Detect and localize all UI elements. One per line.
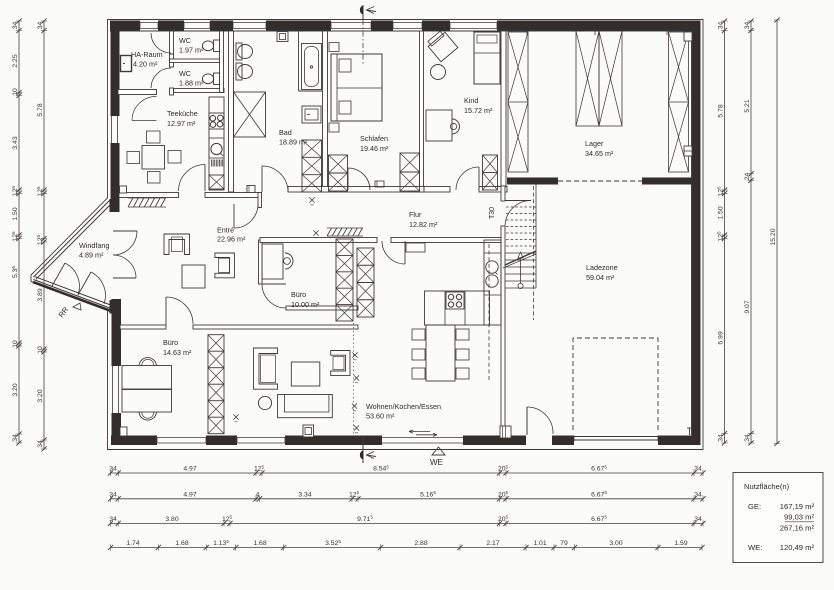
svg-text:3.20: 3.20: [12, 383, 19, 396]
svg-text:34: 34: [744, 434, 751, 442]
svg-text:1.97 m²: 1.97 m²: [179, 46, 204, 55]
svg-text:WE:: WE:: [748, 543, 762, 552]
svg-text:3.43: 3.43: [12, 136, 19, 149]
svg-text:4: 4: [256, 491, 260, 498]
svg-text:24: 24: [744, 173, 751, 181]
svg-text:53.60 m²: 53.60 m²: [366, 412, 395, 421]
svg-text:4.89 m²: 4.89 m²: [79, 251, 104, 260]
svg-text:Teeküche: Teeküche: [167, 109, 198, 118]
svg-text:1.50: 1.50: [718, 206, 725, 219]
svg-text:3.34: 3.34: [298, 491, 311, 498]
svg-text:59.04 m²: 59.04 m²: [586, 273, 615, 282]
svg-text:5.21: 5.21: [744, 99, 751, 112]
svg-text:1.59: 1.59: [674, 540, 687, 547]
svg-text:HA-Raum: HA-Raum: [131, 50, 163, 59]
svg-text:Bad: Bad: [279, 128, 292, 137]
svg-text:14.63 m²: 14.63 m²: [163, 348, 192, 357]
svg-text:6.99: 6.99: [718, 331, 725, 344]
svg-text:34: 34: [12, 22, 19, 30]
svg-text:34: 34: [718, 22, 725, 30]
svg-text:12.97 m²: 12.97 m²: [167, 119, 196, 128]
svg-text:34: 34: [694, 491, 702, 498]
svg-text:34: 34: [37, 440, 44, 448]
svg-text:WC: WC: [179, 36, 191, 45]
svg-text:267,16 m²: 267,16 m²: [780, 524, 815, 533]
svg-text:1.68: 1.68: [253, 540, 266, 547]
svg-text:34.65 m²: 34.65 m²: [585, 149, 614, 158]
svg-text:Kind: Kind: [464, 96, 478, 105]
svg-text:WE: WE: [430, 458, 443, 467]
svg-text:9.07: 9.07: [744, 300, 751, 313]
svg-text:WC: WC: [179, 69, 191, 78]
svg-text:3.00: 3.00: [609, 540, 622, 547]
svg-text:167,19 m²: 167,19 m²: [780, 502, 815, 511]
svg-text:2.25: 2.25: [12, 54, 19, 67]
svg-text:10.00 m²: 10.00 m²: [291, 300, 320, 309]
svg-text:18.89 m²: 18.89 m²: [279, 138, 308, 147]
svg-text:1.01: 1.01: [533, 540, 546, 547]
svg-text:Schlafen: Schlafen: [360, 134, 388, 143]
svg-text:34: 34: [694, 466, 702, 473]
svg-text:79: 79: [560, 540, 568, 547]
svg-text:34: 34: [12, 434, 19, 442]
svg-text:1.50: 1.50: [12, 207, 19, 220]
svg-text:99,03 m²: 99,03 m²: [784, 513, 814, 522]
svg-text:34: 34: [109, 466, 117, 473]
svg-text:GE:: GE:: [748, 502, 761, 511]
svg-text:2.88: 2.88: [414, 540, 427, 547]
svg-text:22.96 m²: 22.96 m²: [217, 235, 246, 244]
svg-text:2.17: 2.17: [486, 540, 499, 547]
svg-text:34: 34: [694, 516, 702, 523]
svg-text:Nutzfläche(n): Nutzfläche(n): [744, 482, 790, 491]
svg-text:34: 34: [109, 491, 117, 498]
svg-text:T30: T30: [489, 207, 496, 219]
svg-text:10: 10: [37, 346, 44, 354]
svg-text:Büro: Büro: [163, 338, 178, 347]
svg-text:Büro: Büro: [291, 290, 306, 299]
svg-text:5.78: 5.78: [718, 104, 725, 117]
svg-text:10: 10: [12, 88, 19, 96]
svg-text:3.89: 3.89: [37, 288, 44, 301]
svg-text:34: 34: [744, 22, 751, 30]
svg-text:Flur: Flur: [409, 210, 422, 219]
svg-text:15.72 m²: 15.72 m²: [464, 106, 493, 115]
svg-text:120,49 m²: 120,49 m²: [780, 543, 815, 552]
svg-text:Windfang: Windfang: [79, 241, 109, 250]
svg-text:19.46 m²: 19.46 m²: [360, 144, 389, 153]
svg-text:1.74: 1.74: [126, 540, 139, 547]
svg-text:10: 10: [12, 340, 19, 348]
svg-text:Ladezone: Ladezone: [586, 263, 618, 272]
svg-text:4.97: 4.97: [183, 491, 196, 498]
svg-text:3.80: 3.80: [165, 516, 178, 523]
svg-text:5.78: 5.78: [37, 103, 44, 116]
svg-text:12.82 m²: 12.82 m²: [409, 220, 438, 229]
svg-text:3.20: 3.20: [37, 389, 44, 402]
svg-text:15.20: 15.20: [770, 228, 777, 245]
svg-text:4.20 m²: 4.20 m²: [133, 60, 158, 69]
svg-text:34: 34: [37, 22, 44, 30]
svg-text:1.68: 1.68: [175, 540, 188, 547]
svg-text:1.88 m²: 1.88 m²: [179, 79, 204, 88]
svg-text:Wohnen/Kochen/Essen: Wohnen/Kochen/Essen: [366, 402, 441, 411]
svg-text:Entré: Entré: [217, 226, 234, 235]
svg-text:Lager: Lager: [585, 139, 604, 148]
svg-text:4.97: 4.97: [183, 466, 196, 473]
svg-text:34: 34: [718, 434, 725, 442]
svg-text:34: 34: [109, 516, 117, 523]
